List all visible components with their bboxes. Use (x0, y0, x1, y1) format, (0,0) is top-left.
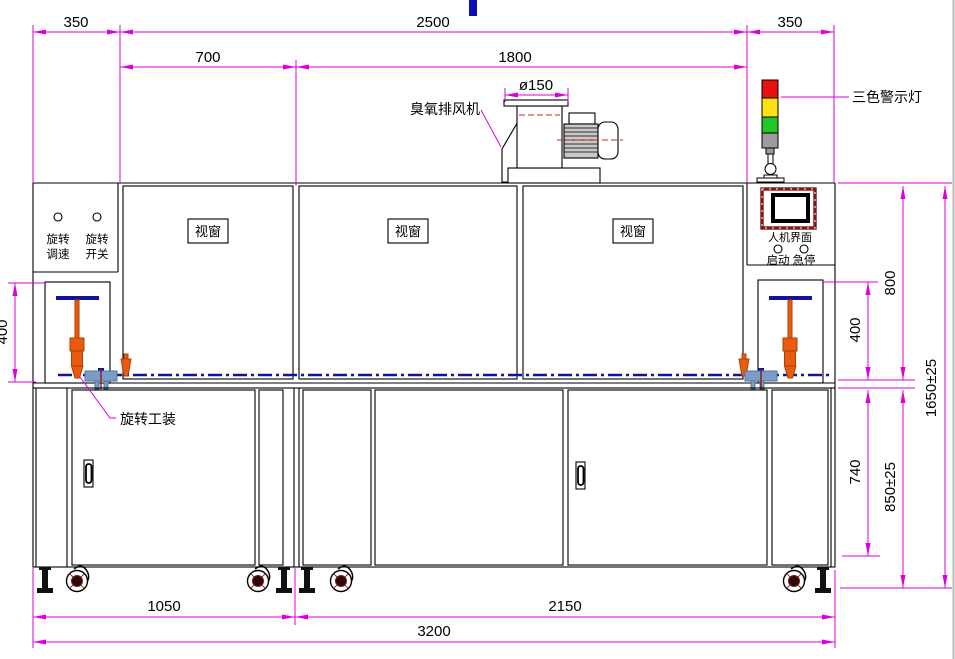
rotate-speed-label-l1: 旋转 (47, 232, 70, 246)
dim-1050: 1050 (147, 598, 180, 615)
warning-light-yellow (762, 98, 778, 117)
dim-dia150: ø150 (519, 77, 553, 94)
dim-2500: 2500 (416, 14, 449, 31)
fan-base (508, 168, 600, 183)
rotate-speed-label-l2: 调速 (47, 248, 70, 261)
warning-light-base-segment (762, 133, 778, 148)
chamber-3 (523, 186, 743, 379)
dim-740: 740 (847, 459, 864, 484)
dim-800: 800 (882, 270, 899, 295)
dim-350-left: 350 (63, 14, 88, 31)
dim-850: 850±25 (882, 462, 899, 512)
hmi-screen (773, 195, 808, 221)
viewport-3-label: 视窗 (620, 224, 646, 239)
foot (276, 567, 292, 593)
dim-400-right: 400 (847, 317, 864, 342)
motor-terminal-box (569, 113, 595, 124)
rotate-switch-label-l1: 旋转 (86, 232, 109, 246)
left-fixture-rail (56, 296, 99, 300)
exhaust-fan (502, 100, 623, 183)
estop-button (800, 245, 808, 253)
dim-1650: 1650±25 (923, 359, 940, 417)
door-handle-2 (576, 462, 585, 489)
cabinet-door-2 (375, 390, 563, 565)
estop-label: 急停 (793, 253, 816, 267)
left-control-panel: 旋转 调速 旋转 开关 (47, 213, 109, 261)
foot (299, 567, 315, 593)
motor-fins (564, 124, 598, 158)
dim-400-left: 400 (0, 319, 11, 344)
caster (67, 566, 89, 591)
caster (784, 566, 806, 591)
foot (815, 567, 831, 593)
duct-flange (504, 100, 568, 106)
left-conveyor-bracket (85, 368, 117, 389)
rotate-switch-label-l2: 开关 (86, 247, 109, 261)
warning-light-green (762, 117, 778, 133)
viewport-2-label: 视窗 (395, 224, 421, 239)
start-label: 启动 (767, 254, 790, 267)
rotate-speed-knob (54, 213, 62, 221)
caster (331, 566, 353, 591)
warning-light-tower (757, 80, 784, 182)
dim-2150: 2150 (548, 598, 581, 615)
dim-350-right: 350 (777, 14, 802, 31)
warning-light-red (762, 80, 778, 98)
start-button (774, 245, 782, 253)
dim-3200: 3200 (417, 623, 450, 640)
dim-700: 700 (195, 49, 220, 66)
hmi-panel: 人机界面 启动 急停 (762, 189, 816, 267)
caster (248, 566, 270, 591)
dim-1800: 1800 (498, 49, 531, 66)
chamber-2 (299, 186, 517, 379)
blue-top-mark (469, 0, 477, 16)
viewport-labels: 视窗 视窗 视窗 (188, 219, 653, 243)
cad-drawing-canvas: 旋转 调速 旋转 开关 视窗 视窗 视窗 人机界面 启动 急停 (0, 0, 955, 659)
machine-front-view-drawing: 旋转 调速 旋转 开关 视窗 视窗 视窗 人机界面 启动 急停 (0, 0, 955, 659)
foot (37, 567, 53, 593)
left-rotate-fixture (70, 300, 84, 378)
chamber-1 (123, 186, 293, 379)
hmi-label: 人机界面 (768, 230, 812, 244)
right-rotate-fixture (783, 300, 797, 378)
rotate-fixture-label: 旋转工装 (120, 411, 176, 427)
casters (67, 566, 806, 591)
right-fixture-rail (769, 296, 812, 300)
right-conveyor-bracket (745, 368, 777, 389)
door-handle-1 (84, 460, 93, 487)
rotate-switch-knob (93, 213, 101, 221)
viewport-1-label: 视窗 (195, 224, 221, 239)
machine-upper-body (33, 183, 835, 388)
cabinet-door-3 (568, 390, 767, 565)
tricolor-light-label: 三色警示灯 (852, 89, 922, 105)
ozone-fan-label: 臭氧排风机 (410, 101, 480, 117)
leveling-feet (37, 567, 831, 593)
